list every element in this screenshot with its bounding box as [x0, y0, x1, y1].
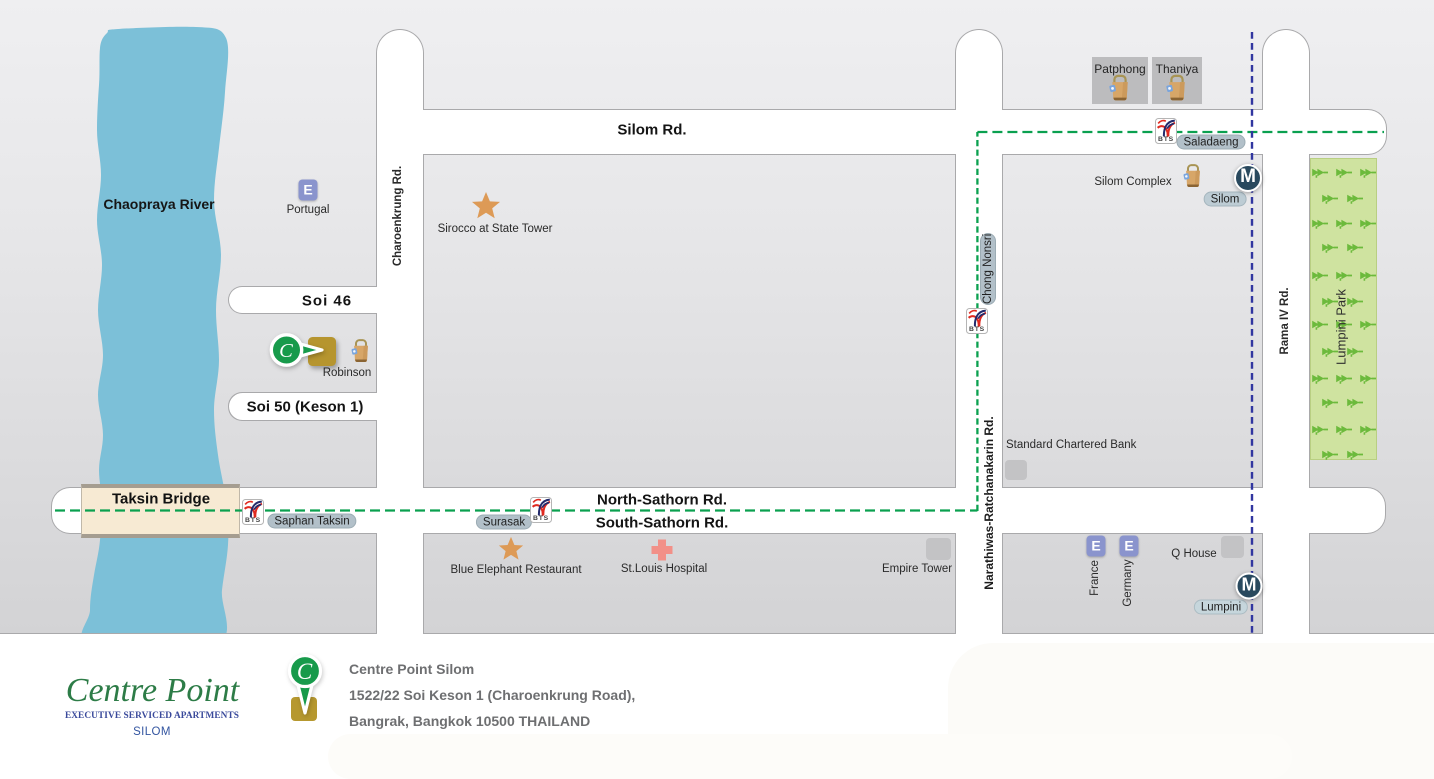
svg-text:BTS: BTS — [1158, 136, 1174, 143]
svg-text:C: C — [279, 340, 293, 362]
svg-text:C: C — [297, 659, 313, 684]
